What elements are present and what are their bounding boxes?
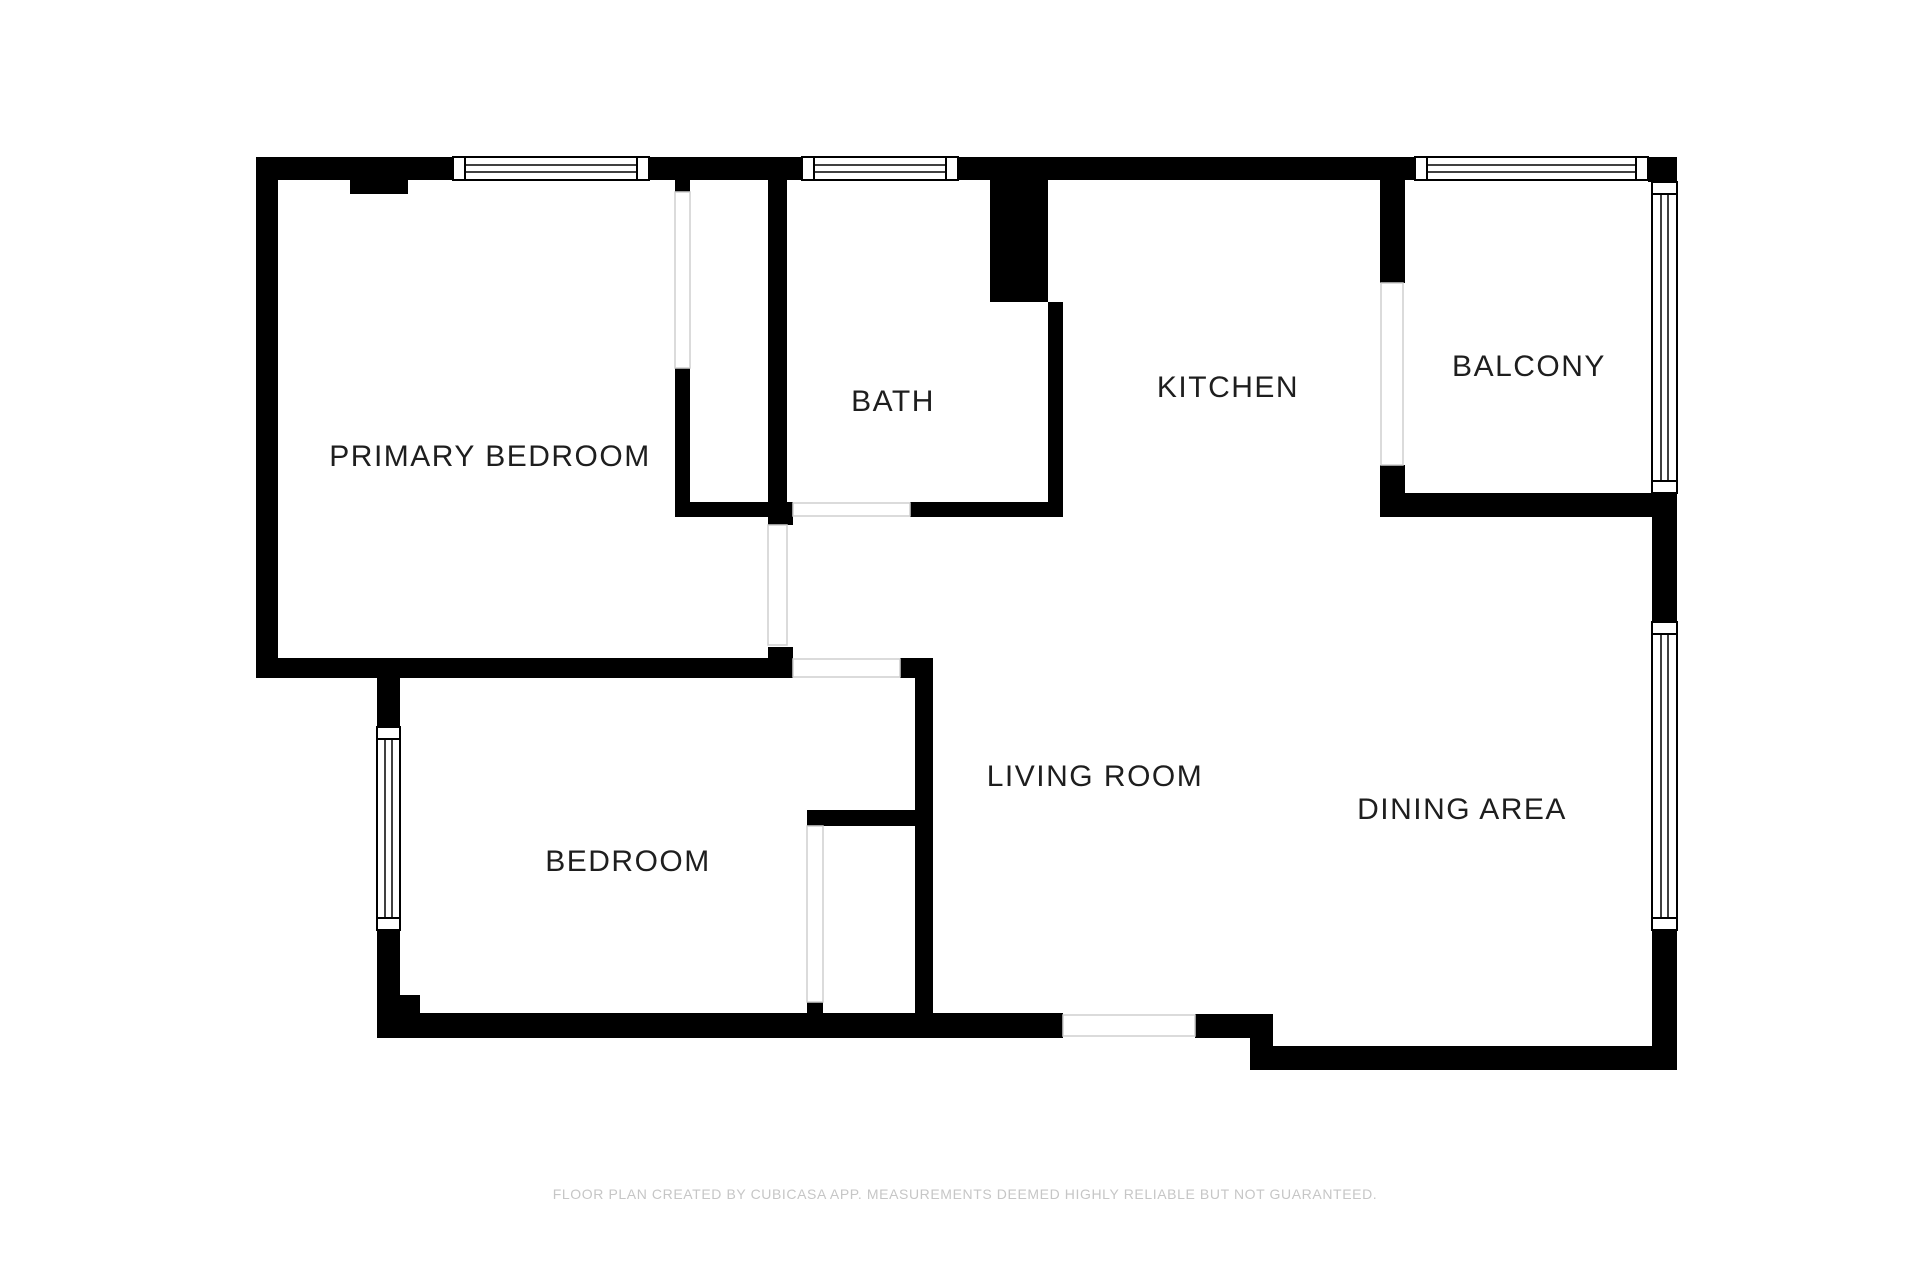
wall-segment [768,647,793,658]
wall-segment [675,368,690,517]
wall-segment [377,1013,1063,1038]
room-label-bedroom: BEDROOM [545,845,711,879]
door-opening [1381,283,1403,465]
wall-segment [1048,302,1063,517]
wall-segment [768,502,793,525]
wall-segment [377,678,400,727]
window [1652,182,1677,493]
floor-plan-page: PRIMARY BEDROOM BATH KITCHEN BALCONY BED… [0,0,1920,1280]
window [1415,157,1648,180]
footer-disclaimer: FLOOR PLAN CREATED BY CUBICASA APP. MEAS… [553,1186,1378,1202]
wall-segment [807,810,933,826]
room-label-balcony: BALCONY [1452,350,1606,384]
wall-segment [768,180,787,525]
wall-segment [256,658,793,678]
room-label-living-room: LIVING ROOM [987,760,1204,794]
door-opening [675,192,690,368]
wall-segment [1195,1014,1273,1038]
room-label-kitchen: KITCHEN [1157,371,1299,405]
room-label-dining-area: DINING AREA [1357,793,1567,827]
floor-plan-drawing [0,0,1920,1280]
window [453,157,649,180]
wall-segment [256,157,453,180]
window [1652,622,1677,930]
window [377,727,400,930]
door-opening [1063,1015,1195,1036]
wall-segment [675,502,768,517]
wall-segment [910,502,1063,517]
door-opening [768,525,787,645]
room-label-bath: BATH [851,385,935,419]
wall-segment [400,995,420,1013]
window [802,157,958,180]
wall-segment [1648,157,1677,182]
door-opening [807,826,823,1002]
wall-segment [1652,493,1677,622]
wall-segment [649,157,802,180]
door-opening [793,659,900,677]
wall-segment [377,930,400,1013]
wall-segment [807,1002,823,1013]
wall-segment [1380,493,1652,517]
wall-segment [990,180,1048,302]
wall-segment [256,157,278,678]
door-opening [793,503,910,516]
wall-segment [1380,180,1405,283]
wall-segment [1250,1038,1273,1047]
wall-segment [958,157,1415,180]
wall-segment [350,180,408,194]
wall-segment [915,658,933,1013]
room-label-primary-bedroom: PRIMARY BEDROOM [329,440,650,474]
wall-segment [900,658,933,678]
wall-segment [675,180,690,192]
wall-segment [1250,1046,1677,1070]
